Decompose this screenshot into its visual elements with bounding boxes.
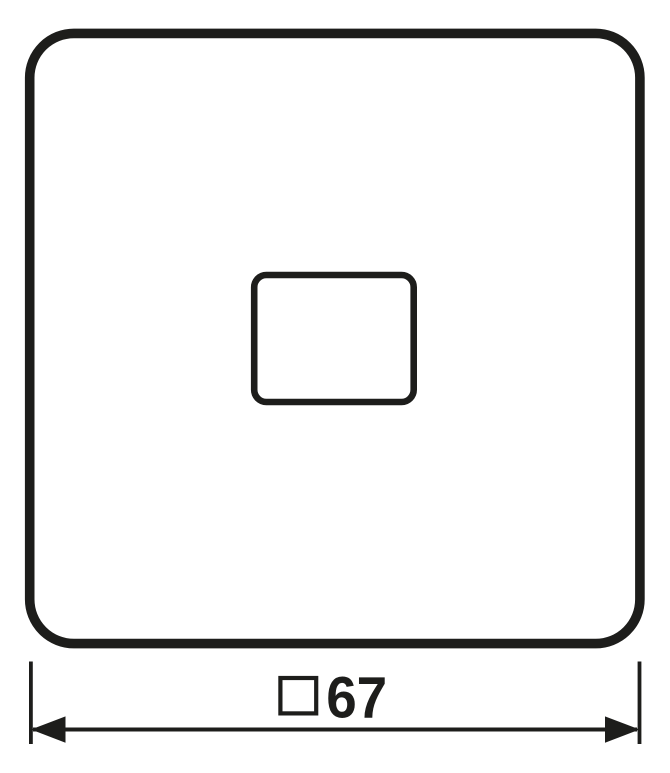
svg-text:67: 67: [326, 666, 387, 731]
